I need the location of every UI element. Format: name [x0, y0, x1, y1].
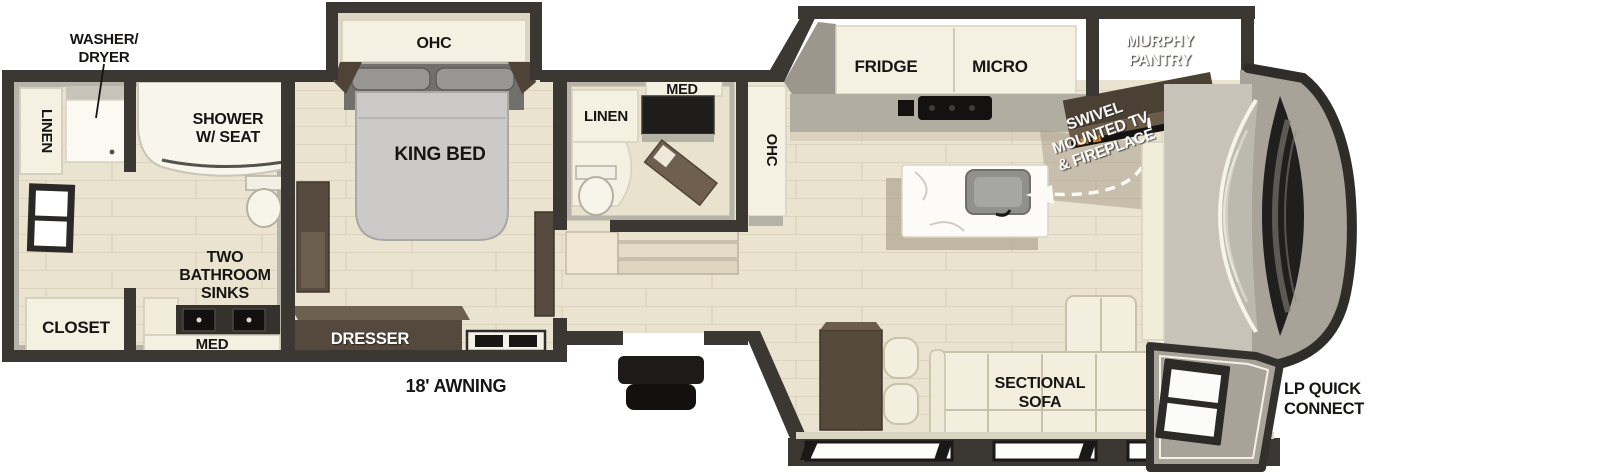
label-sinks-1: TWO: [207, 249, 244, 266]
label-med-rear: MED: [196, 336, 229, 353]
window-corner: [1155, 358, 1230, 445]
label-sinks-3: SINKS: [201, 285, 249, 302]
label-closet: CLOSET: [42, 318, 111, 337]
wall-shower-divider: [124, 76, 136, 172]
burner-2: [949, 105, 955, 111]
label-awning: 18' AWNING: [406, 376, 507, 396]
label-ohc-bedroom: OHC: [417, 35, 453, 52]
wall-bedroom-right-upper: [553, 70, 567, 230]
entry-step-upper: [618, 356, 704, 384]
label-king-bed: KING BED: [394, 144, 485, 165]
burner-3: [969, 105, 975, 111]
washer-dryer-top: [66, 86, 128, 100]
label-linen-mid: LINEN: [584, 108, 628, 125]
wall-entry-right: [704, 331, 748, 345]
label-murphy-1: MURPHY: [1126, 33, 1195, 50]
wall-jog: [553, 331, 567, 362]
label-washer-dryer-1: WASHER/: [70, 31, 140, 48]
washer-handle: [110, 150, 115, 155]
faucet-left: [197, 318, 202, 323]
ohc-kitchen-base: [749, 216, 783, 226]
med-cabinet-mid: [642, 96, 714, 134]
entry-step-lower: [626, 384, 696, 410]
toilet-mid: [579, 177, 613, 215]
counter-appliance: [898, 100, 914, 116]
rv-floorplan: WASHER/ DRYER LINEN SHOWER W/ SEAT CLOSE…: [0, 0, 1600, 474]
label-med-mid: MED: [666, 82, 698, 98]
wall-rear-left: [2, 70, 14, 362]
label-dresser: DRESSER: [331, 330, 410, 348]
table-top-edge: [820, 322, 882, 330]
stairs-landing: [566, 232, 618, 274]
label-murphy-2: PANTRY: [1129, 52, 1192, 69]
sofa-arm: [930, 350, 945, 438]
wall-kitchen-top: [798, 6, 1255, 19]
toilet-rear: [247, 189, 281, 227]
burner-1: [929, 105, 935, 111]
label-sofa-1: SECTIONAL: [995, 375, 1086, 392]
wardrobe-panel: [301, 232, 325, 288]
faucet-right: [247, 318, 252, 323]
dinette-table: [820, 330, 882, 430]
chair-1: [884, 338, 918, 378]
front-cap: [1142, 68, 1352, 367]
wall-midbath-right: [736, 70, 748, 232]
wall-bedslide-right: [530, 2, 542, 80]
window-left: [27, 183, 75, 253]
label-shower-1: SHOWER: [193, 111, 264, 128]
label-sinks-2: BATHROOM: [179, 267, 270, 284]
step-tread-2: [509, 335, 537, 347]
wall-midbath-bottom: [610, 220, 748, 232]
step-tread-1: [475, 335, 503, 347]
lp-corner: [1150, 346, 1280, 468]
label-sofa-2: SOFA: [1019, 394, 1062, 411]
label-ohc-kitchen: OHC: [763, 134, 780, 167]
slide-window-1: [806, 442, 952, 460]
stair-2: [618, 243, 738, 258]
pillow-left: [352, 68, 430, 90]
wall-bedslide-top: [326, 2, 542, 13]
label-lp-2: CONNECT: [1284, 400, 1364, 418]
label-washer-dryer-2: DRYER: [79, 49, 130, 66]
floorplan-canvas: WASHER/ DRYER LINEN SHOWER W/ SEAT CLOSE…: [0, 0, 1600, 474]
entertainment-cabinet: [1142, 142, 1164, 340]
wall-rear-bedroom: [281, 70, 295, 362]
toilet-tank-rear: [246, 176, 282, 190]
chair-2: [884, 384, 918, 424]
label-linen-rear: LINEN: [38, 109, 55, 153]
cabinet-right: [535, 212, 554, 316]
label-shower-2: W/ SEAT: [196, 129, 261, 146]
pillow-right: [436, 68, 514, 90]
dresser-top: [290, 306, 470, 320]
wall-bedslide-left: [326, 2, 338, 80]
label-micro: MICRO: [972, 57, 1028, 76]
king-bed: [356, 92, 508, 240]
label-fridge: FRIDGE: [854, 57, 917, 76]
wall-closet-stub: [124, 288, 136, 358]
wall-pantry-left: [1086, 12, 1099, 96]
label-lp-1: LP QUICK: [1284, 380, 1361, 398]
sink-basin: [974, 177, 1022, 207]
wall-midbath-top: [553, 70, 748, 82]
stair-3: [618, 260, 738, 274]
med-shelf: [642, 134, 714, 142]
